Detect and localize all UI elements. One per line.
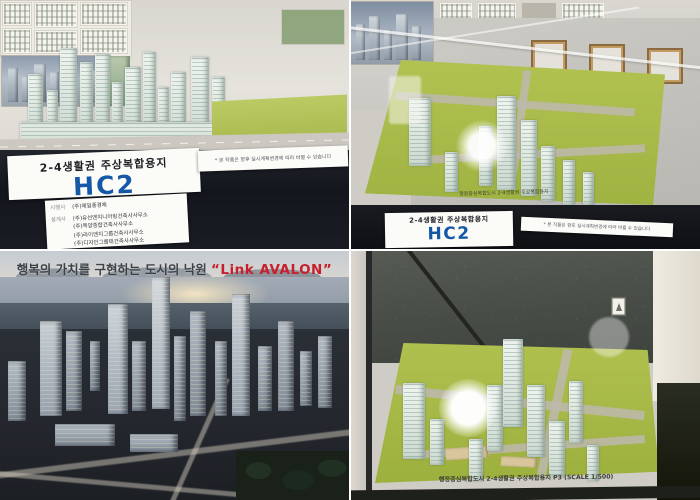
model-photo-collage: 2-4생활권 주상복합용지 HC2 시행사 (주)제일풍경채 설계사 (주)유선… (0, 0, 700, 500)
photo-top-right-glass-case: 행정중심복합도시 2-4생활권 주상복합용지 2-4생활권 주상복합용지 HC2… (351, 0, 700, 249)
photo-bottom-right-model: 행정중심복합도시 2-4생활권 주상복합용지 P3 (SCALE 1/500) (351, 251, 700, 500)
scale-model-towers (351, 251, 700, 486)
slogan-text: 행복의 가치를 구현하는 도시의 낙원 (17, 262, 211, 277)
rendering-slogan: 행복의 가치를 구현하는 도시의 낙원 “Link AVALON” (0, 259, 349, 278)
site-sign-card: 2-4생활권 주상복합용지 HC2 (385, 211, 514, 248)
photo-bottom-left-rendering: 행복의 가치를 구현하는 도시의 낙원 “Link AVALON” (0, 251, 349, 500)
photo-top-left-model: 2-4생활권 주상복합용지 HC2 시행사 (주)제일풍경채 설계사 (주)유선… (0, 0, 349, 249)
designer-label: 설계사 (51, 215, 69, 224)
light-reflection (456, 120, 508, 172)
glass-text-reflection (389, 76, 421, 124)
cream-pillar (653, 251, 700, 401)
site-sign-card: 2-4생활권 주상복합용지 HC2 (7, 148, 201, 200)
north-arrow-marker (611, 297, 626, 316)
light-flare (439, 379, 497, 437)
floor-strip (351, 251, 366, 500)
company-info-card: 시행사 (주)제일풍경채 설계사 (주)유선엔지니어링건축사사무소 (주)목양종… (45, 193, 189, 249)
developer-label: 시행사 (50, 204, 68, 213)
dark-glass-corner (657, 383, 700, 500)
case-frame (366, 251, 372, 500)
site-sign-code: HC2 (385, 224, 513, 245)
brand-name: “Link AVALON” (211, 262, 332, 278)
rendering-trees (236, 451, 349, 500)
base-frame-edge (351, 486, 700, 500)
ceiling-light-reflection (589, 317, 629, 357)
developer-name: (주)제일풍경채 (72, 202, 107, 212)
